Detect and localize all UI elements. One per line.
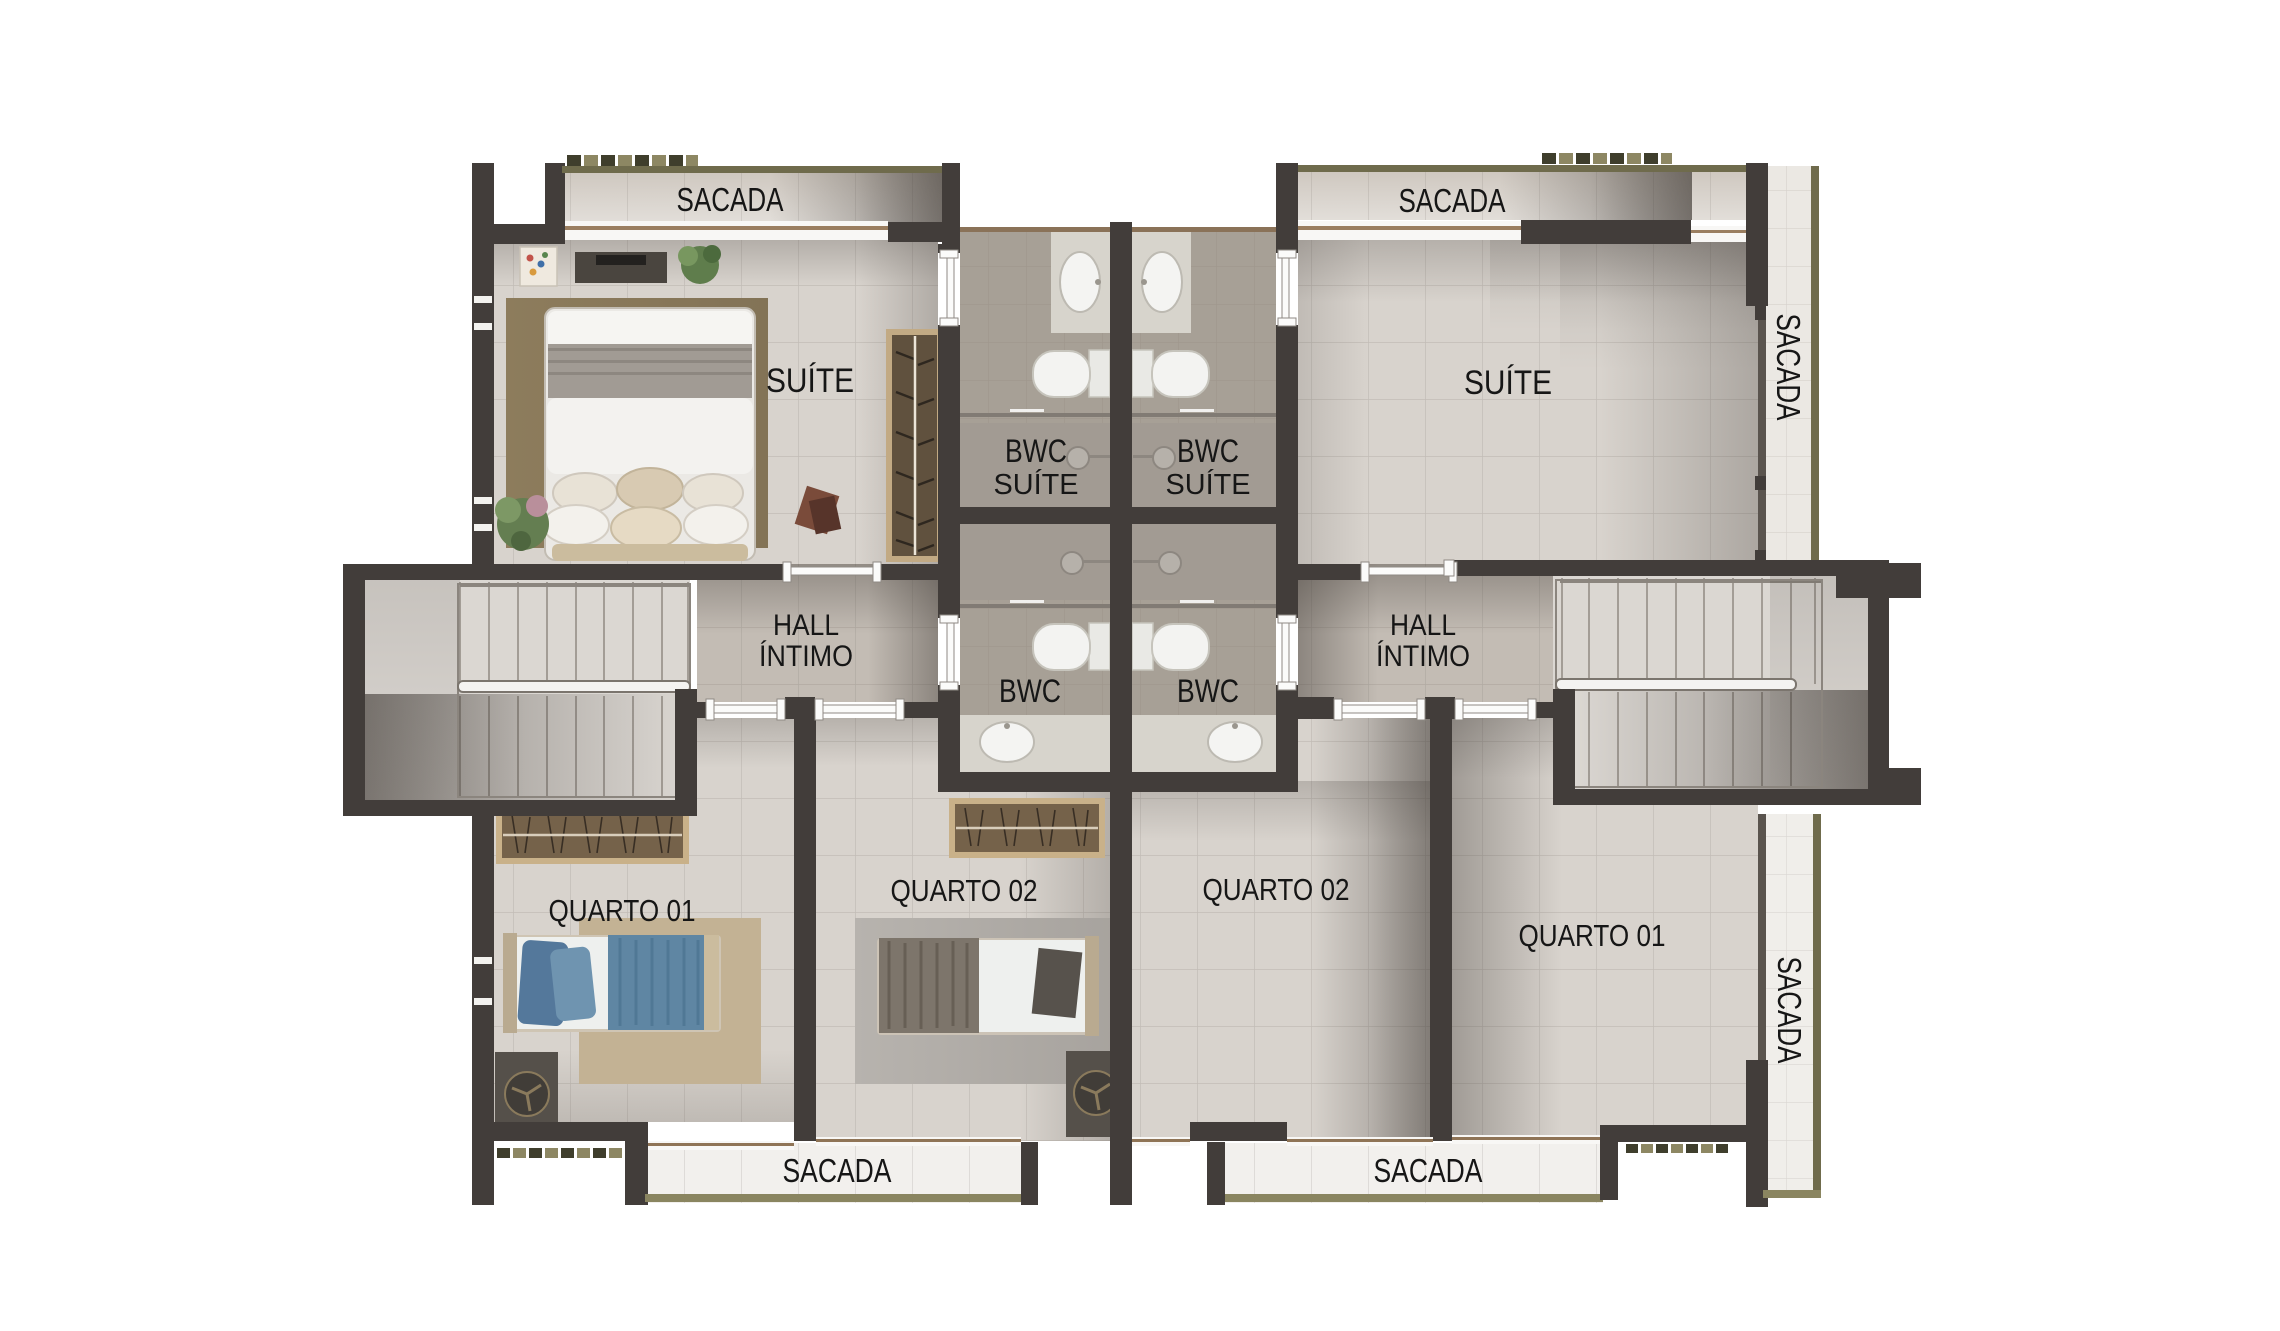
svg-text:HALL: HALL (1390, 609, 1456, 642)
svg-text:SACADA: SACADA (1374, 1152, 1483, 1189)
svg-text:QUARTO 02: QUARTO 02 (1203, 872, 1350, 907)
svg-text:SACADA: SACADA (1770, 314, 1807, 421)
svg-text:SACADA: SACADA (1399, 182, 1506, 219)
svg-text:QUARTO 01: QUARTO 01 (1519, 918, 1666, 953)
svg-text:SUÍTE: SUÍTE (1464, 364, 1552, 402)
svg-text:SACADA: SACADA (1771, 957, 1808, 1064)
svg-text:BWC: BWC (1177, 673, 1239, 709)
svg-text:SUÍTE: SUÍTE (994, 468, 1079, 501)
svg-text:QUARTO 02: QUARTO 02 (891, 873, 1038, 908)
svg-text:QUARTO 01: QUARTO 01 (549, 893, 696, 928)
svg-text:SUÍTE: SUÍTE (766, 362, 854, 400)
svg-text:ÍNTIMO: ÍNTIMO (1376, 640, 1470, 673)
svg-text:SUÍTE: SUÍTE (1166, 468, 1251, 501)
svg-text:SACADA: SACADA (677, 181, 784, 218)
svg-text:BWC: BWC (1005, 433, 1067, 469)
svg-text:HALL: HALL (773, 609, 839, 642)
svg-text:SACADA: SACADA (783, 1152, 892, 1189)
svg-text:BWC: BWC (1177, 433, 1239, 469)
svg-text:BWC: BWC (999, 673, 1061, 709)
svg-text:ÍNTIMO: ÍNTIMO (759, 640, 853, 673)
